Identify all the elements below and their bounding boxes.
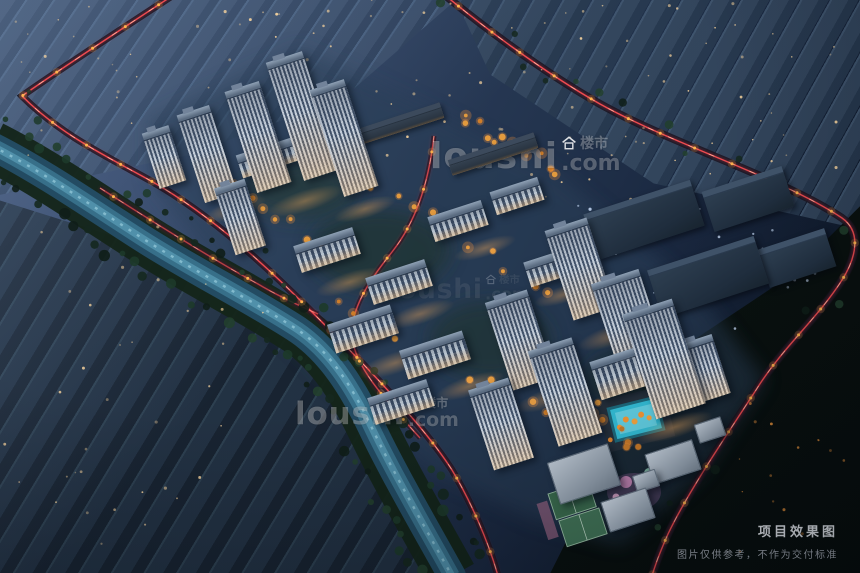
night-aerial-rendering: loushi 楼市 .com loushi 楼市 .com (0, 0, 860, 573)
